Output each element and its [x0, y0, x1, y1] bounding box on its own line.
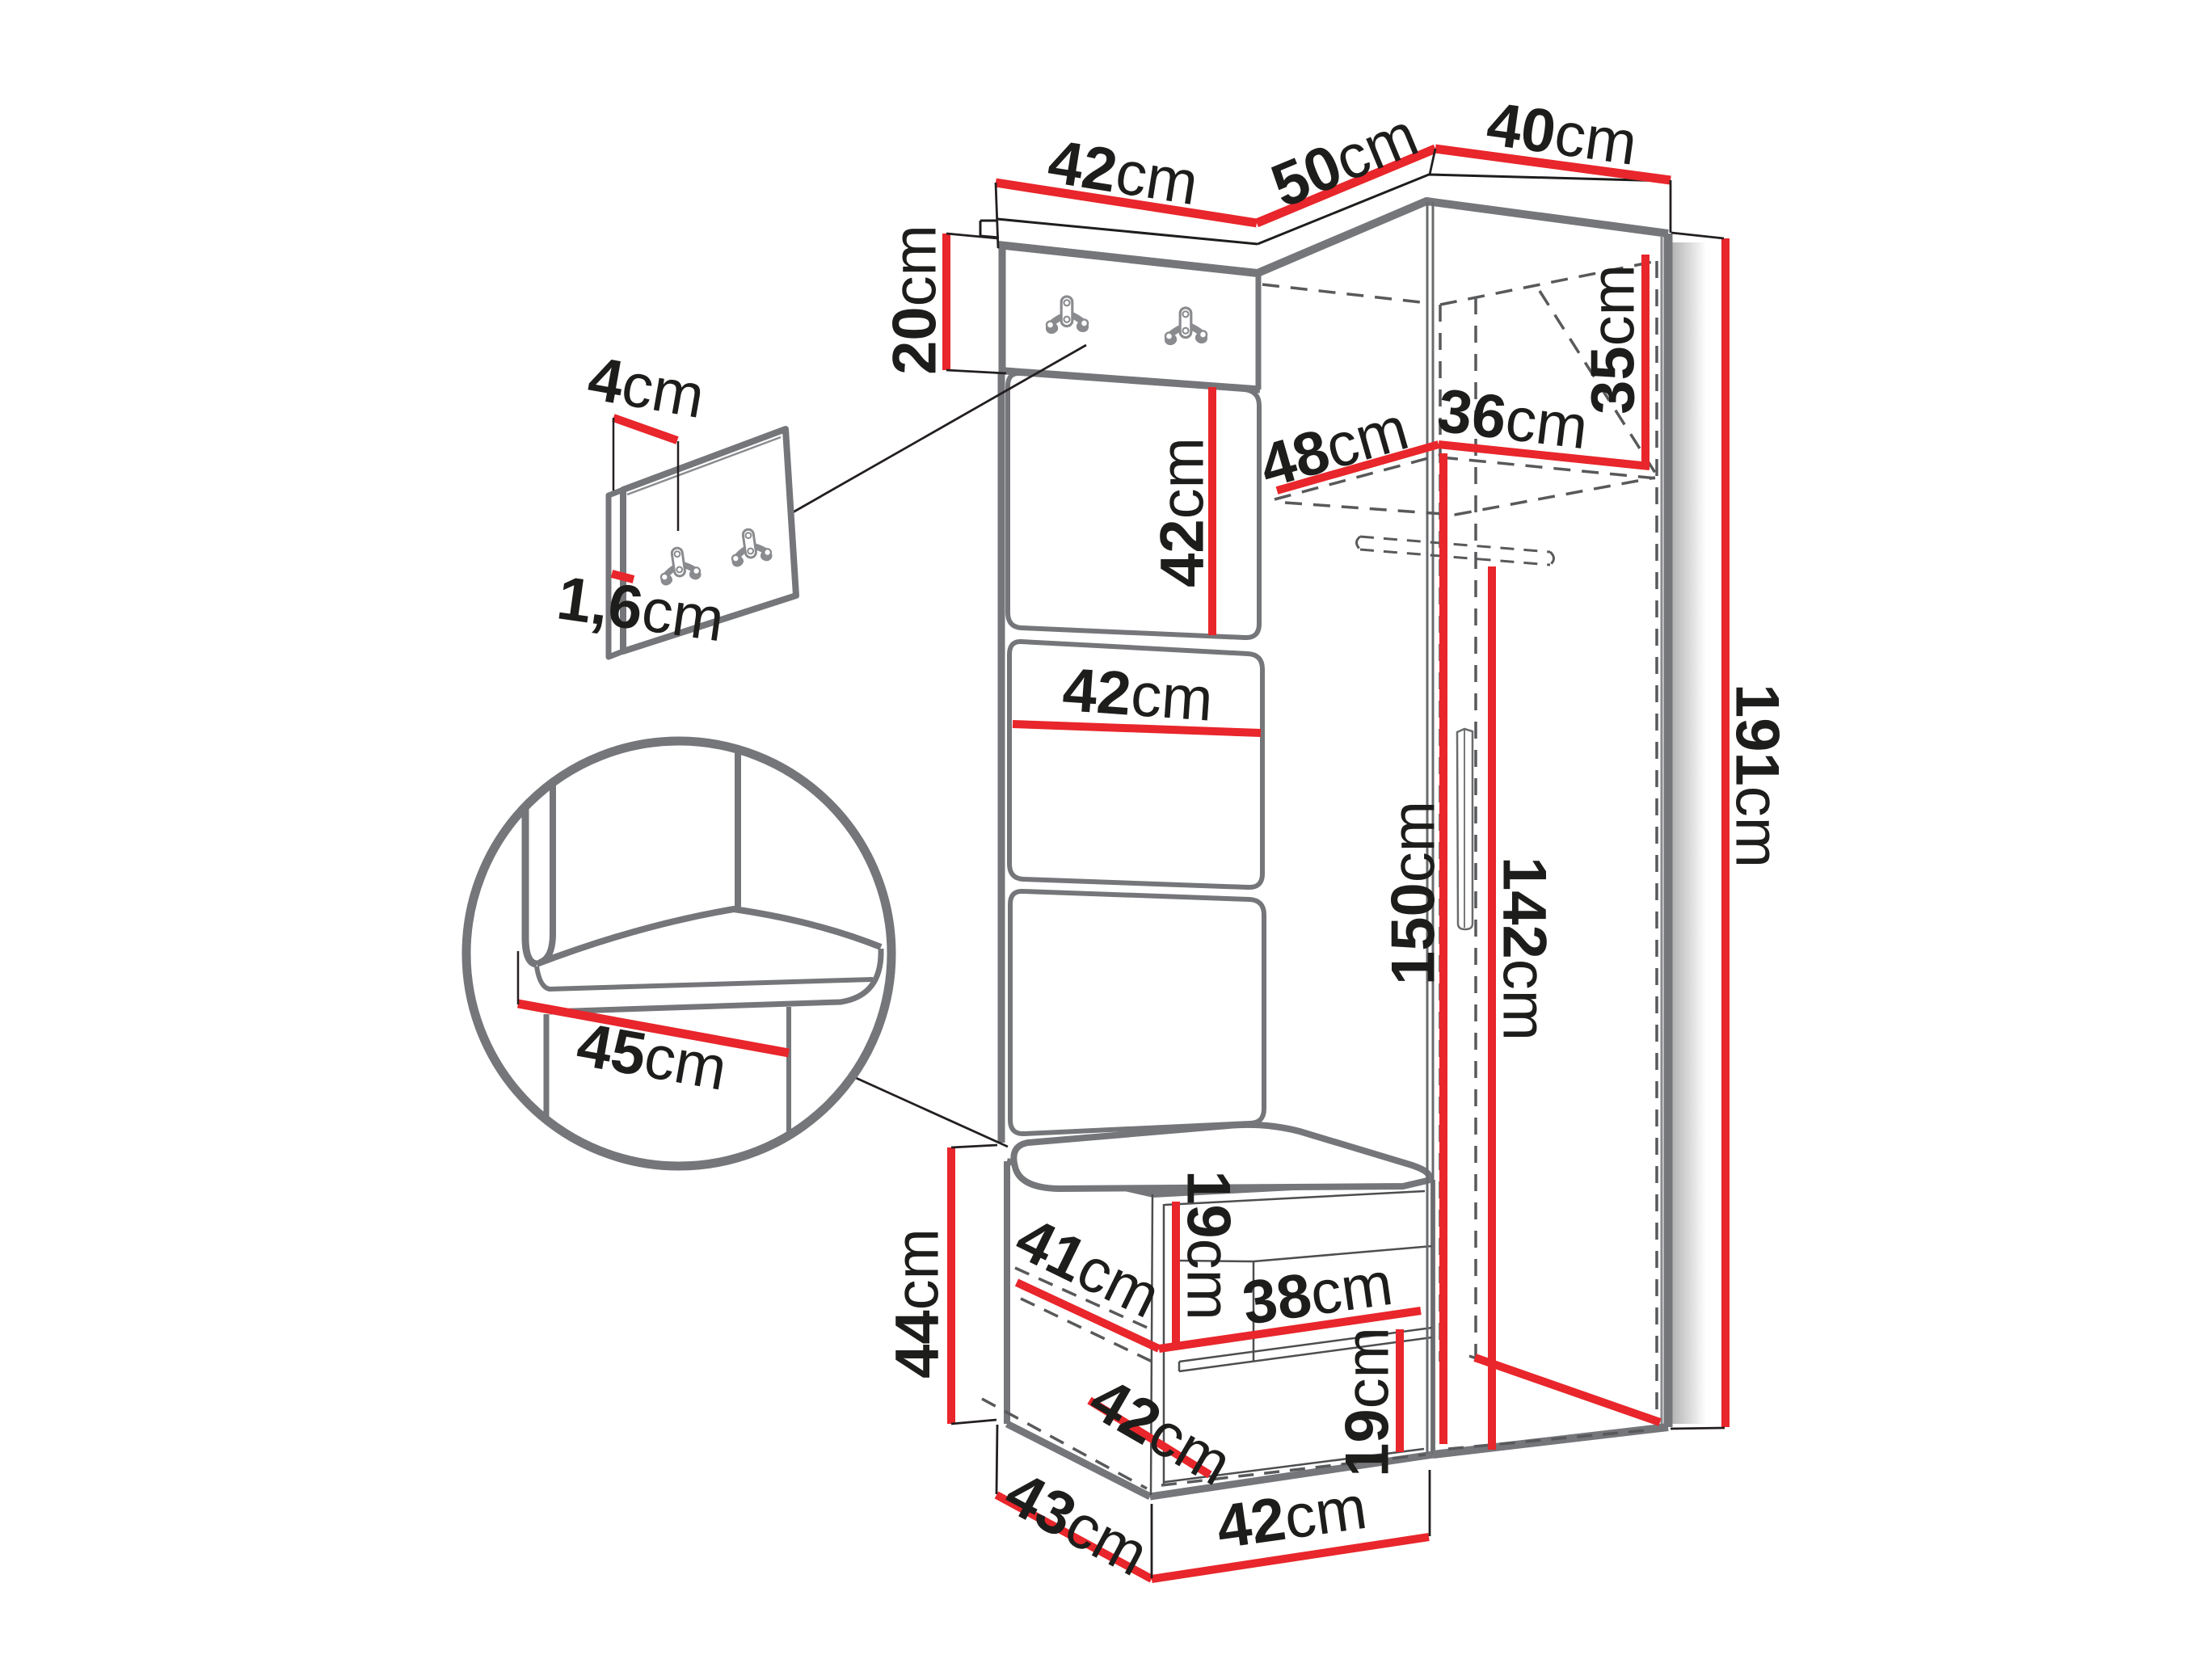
svg-text:19cm: 19cm: [1174, 1170, 1243, 1320]
svg-text:142cm: 142cm: [1490, 857, 1559, 1041]
svg-text:191cm: 191cm: [1723, 684, 1792, 868]
svg-text:19cm: 19cm: [1333, 1327, 1401, 1477]
svg-text:20cm: 20cm: [880, 225, 949, 375]
svg-text:42cm: 42cm: [1060, 655, 1215, 735]
svg-text:35cm: 35cm: [1578, 264, 1647, 415]
svg-text:42cm: 42cm: [1148, 437, 1216, 587]
svg-text:44cm: 44cm: [883, 1228, 951, 1379]
svg-text:150cm: 150cm: [1379, 801, 1447, 985]
